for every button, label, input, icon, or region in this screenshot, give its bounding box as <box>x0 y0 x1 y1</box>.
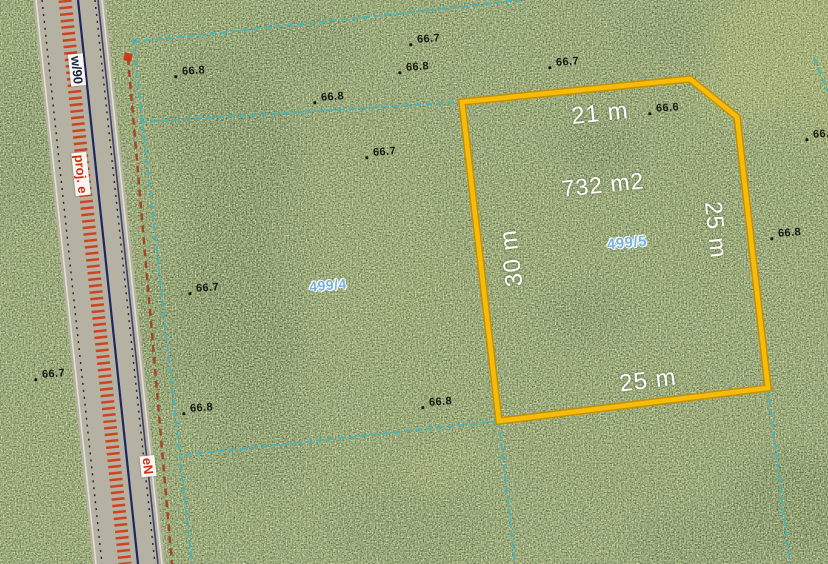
elevation-value: 66.8 <box>182 64 206 78</box>
elevation-value: 66.8 <box>429 395 453 409</box>
elevation-dot <box>421 406 424 409</box>
elevation-label: 66.6 <box>656 101 680 115</box>
map-viewport[interactable]: 21 m 732 m2 25 m 30 m 25 m 499/5 499/4 w… <box>0 0 828 564</box>
dimension-right: 25 m <box>698 200 732 260</box>
elevation-dot <box>409 43 412 46</box>
elevation-value: 66.7 <box>373 145 397 159</box>
road-designation-label: w/90 <box>68 53 86 87</box>
elevation-dot <box>548 66 551 69</box>
parcel-id-selected[interactable]: 499/5 <box>606 233 647 253</box>
elevation-dot <box>182 412 185 415</box>
elevation-label: 66.7 <box>373 145 397 159</box>
elevation-dot <box>365 156 368 159</box>
elevation-value: 66.7 <box>196 281 220 295</box>
elevation-value: 66.7 <box>556 55 580 69</box>
elevation-label: 66.8 <box>778 226 802 240</box>
elevation-label: 66.7 <box>417 32 441 46</box>
elevation-value: 66.8 <box>778 226 802 240</box>
elevation-label: 66.7 <box>196 281 220 295</box>
parcel-id-adjacent[interactable]: 499/4 <box>309 275 348 294</box>
elevation-label: 66.8 <box>813 127 828 141</box>
elevation-dot <box>648 112 651 115</box>
elevation-value: 66.7 <box>417 32 441 46</box>
elevation-label: 66.8 <box>406 60 430 74</box>
elevation-dot <box>174 75 177 78</box>
elevation-value: 66.6 <box>656 101 680 115</box>
elevation-label: 66.8 <box>190 401 214 415</box>
elevation-label: 66.7 <box>42 367 66 381</box>
elevation-label: 66.7 <box>556 55 580 69</box>
elevation-label: 66.8 <box>182 64 206 78</box>
aerial-imagery <box>0 0 828 564</box>
elevation-value: 66.7 <box>42 367 66 381</box>
elevation-label: 66.8 <box>321 90 345 104</box>
elevation-dot <box>34 378 37 381</box>
elevation-value: 66.8 <box>813 127 828 141</box>
elevation-dot <box>188 292 191 295</box>
elevation-label: 66.8 <box>429 395 453 409</box>
elevation-value: 66.8 <box>190 401 214 415</box>
elevation-value: 66.8 <box>321 90 345 104</box>
elevation-dot <box>805 138 808 141</box>
elevation-dot <box>313 101 316 104</box>
dimension-top: 21 m <box>570 97 630 131</box>
elevation-dot <box>770 237 773 240</box>
elevation-dot <box>398 71 401 74</box>
elevation-value: 66.8 <box>406 60 430 74</box>
utility-label: eN <box>139 455 156 477</box>
